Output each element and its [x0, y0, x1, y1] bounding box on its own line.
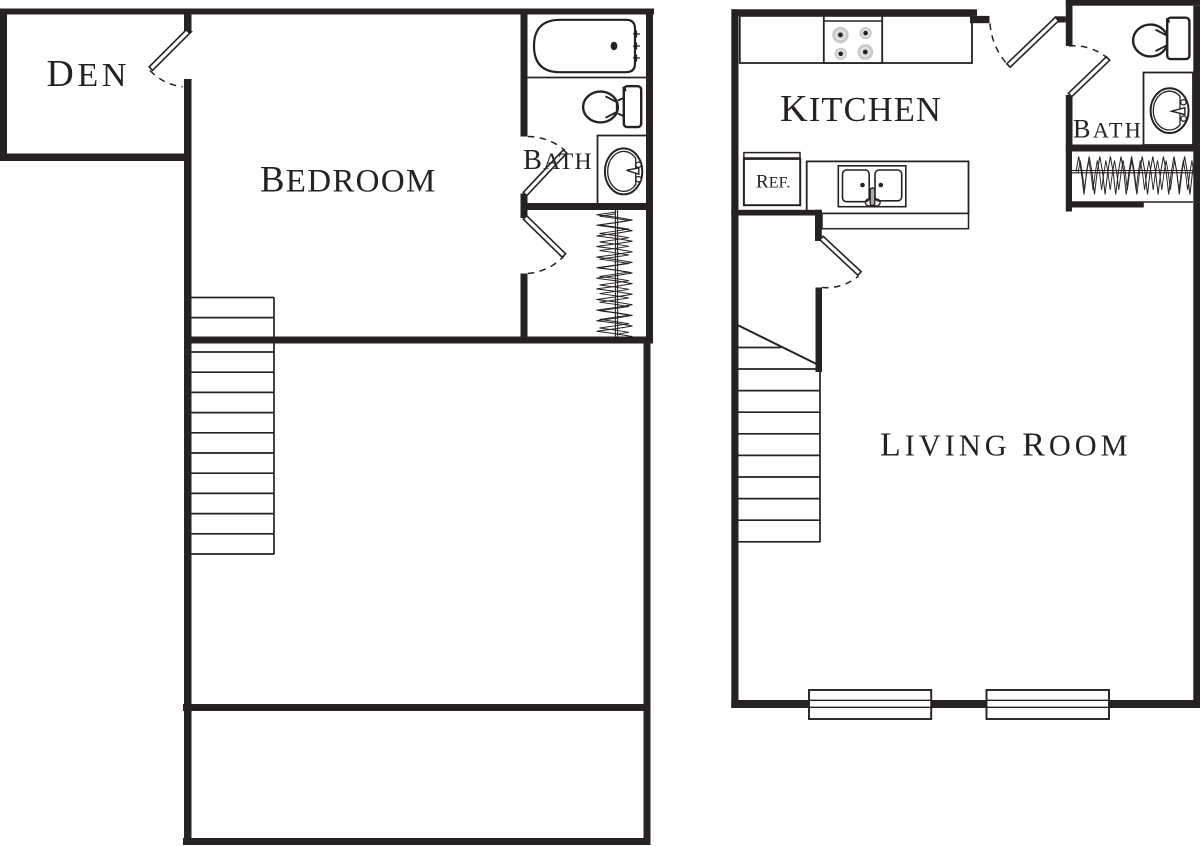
svg-text:BATH: BATH: [523, 145, 593, 176]
svg-text:KITCHEN: KITCHEN: [780, 88, 942, 130]
svg-text:BATH: BATH: [1073, 114, 1143, 143]
svg-text:BEDROOM: BEDROOM: [260, 158, 437, 199]
svg-text:REF.: REF.: [756, 171, 791, 192]
svg-text:LIVING ROOM: LIVING ROOM: [880, 426, 1132, 463]
svg-text:DEN: DEN: [47, 53, 131, 95]
